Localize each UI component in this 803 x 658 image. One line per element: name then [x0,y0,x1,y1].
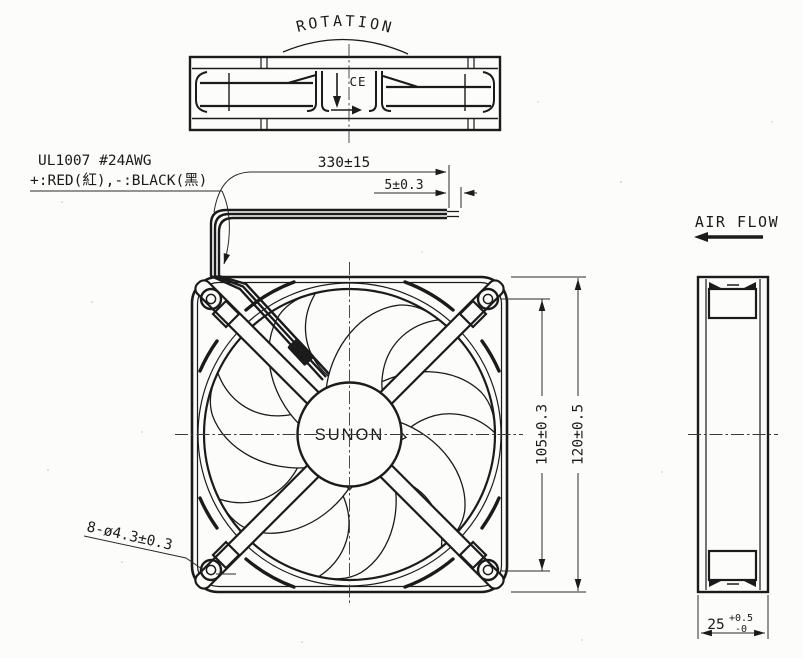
wire-spec-line1: UL1007 #24AWG [38,153,152,169]
airflow-label: AIR FLOW [695,213,779,231]
ce-mark: CE [349,74,366,89]
thickness-tol-plus: +0.5 [729,613,753,624]
thickness-value: 25 [707,617,724,633]
strip-length-text: 5±0.3 [384,178,423,193]
fan-mechanical-drawing: ROTATION CE UL1007 #24AWG +:RED(紅),-:BLA… [0,0,803,658]
wire-spec-line2: +:RED(紅),-:BLACK(黑) [30,172,207,189]
frame-size-text: 120±0.5 [571,404,587,465]
hole-pitch-text: 105±0.3 [535,404,551,465]
thickness-tol-minus: -0 [735,624,747,635]
lead-length-text: 330±15 [318,155,370,171]
drawing-svg: ROTATION CE UL1007 #24AWG +:RED(紅),-:BLA… [0,0,803,658]
